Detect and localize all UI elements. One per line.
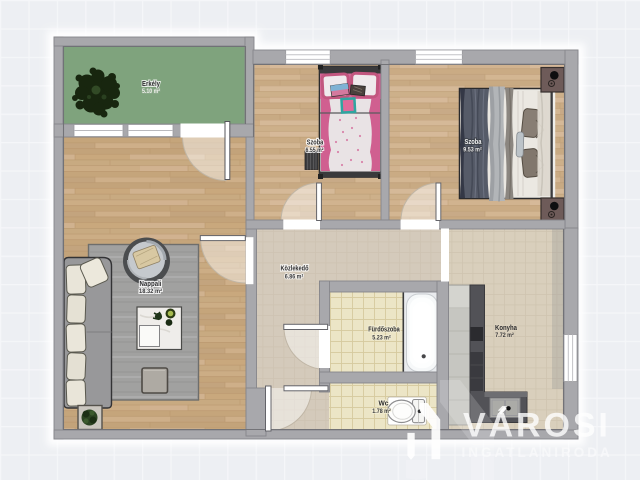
svg-text:6.55 m²: 6.55 m²	[306, 147, 324, 154]
svg-text:6.86 m²: 6.86 m²	[285, 274, 304, 281]
svg-text:Wc: Wc	[379, 401, 389, 408]
svg-text:5.23 m²: 5.23 m²	[372, 335, 391, 342]
svg-text:Szoba: Szoba	[465, 139, 482, 146]
svg-text:1.78 m²: 1.78 m²	[372, 408, 391, 415]
svg-text:5.10 m²: 5.10 m²	[142, 88, 160, 95]
svg-text:Erkély: Erkély	[142, 81, 160, 88]
svg-text:9.53 m²: 9.53 m²	[463, 146, 482, 153]
svg-text:Nappali: Nappali	[140, 281, 162, 288]
svg-text:Fürdőszoba: Fürdőszoba	[368, 327, 400, 334]
svg-text:Konyha: Konyha	[495, 325, 517, 332]
svg-text:INGATLANIRODA: INGATLANIRODA	[462, 445, 613, 460]
svg-text:Közlekedő: Közlekedő	[281, 266, 309, 273]
svg-text:18.32 m²: 18.32 m²	[139, 288, 162, 295]
svg-text:Szoba: Szoba	[307, 140, 324, 147]
svg-text:7.72 m²: 7.72 m²	[495, 332, 514, 339]
svg-text:VÁROSI: VÁROSI	[463, 407, 611, 445]
